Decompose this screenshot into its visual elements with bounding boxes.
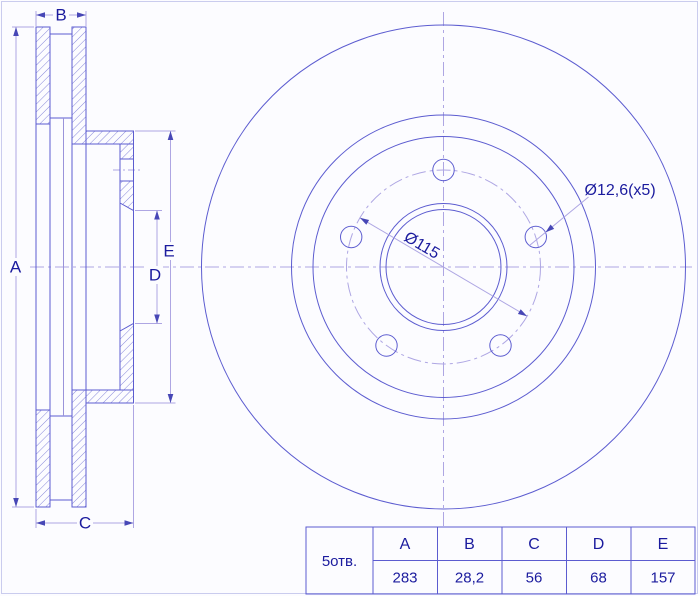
table-header-row: A B C D E (400, 536, 669, 553)
dim-a: A (7, 27, 34, 507)
table-value-c: 56 (526, 569, 543, 586)
table-value-e: 157 (650, 569, 675, 586)
hub-face-hatch-mid (120, 181, 134, 211)
drawing-canvas: A B C D (0, 0, 700, 596)
dim-label-c: C (79, 513, 91, 532)
table-header-d: D (593, 536, 605, 553)
table-header-b: B (464, 536, 475, 553)
table-header-e: E (658, 536, 669, 553)
hub-face-hatch-top (120, 144, 134, 159)
dim-label-a: A (10, 257, 22, 276)
centerlines (30, 12, 692, 530)
table-header-a: A (400, 536, 411, 553)
bolt-hole-bottom-right (490, 335, 511, 356)
table-row-label: 5отв. (322, 553, 357, 570)
table-header-c: C (528, 536, 540, 553)
bolt-circle-label: Ø115 (401, 229, 442, 263)
outboard-plate-lower-hatch (36, 410, 50, 507)
dim-b: B (36, 5, 86, 26)
technical-drawing: A B C D (0, 0, 700, 596)
table-value-b: 28,2 (455, 569, 484, 586)
table-value-a: 283 (392, 569, 417, 586)
page-frame (2, 2, 698, 594)
inboard-plate-hat-upper-hatch (72, 27, 134, 144)
bolt-holes-label: Ø12,6(x5) (585, 182, 656, 199)
hub-face-hatch-bottom (120, 324, 134, 391)
table-value-row: 283 28,2 56 68 157 (392, 569, 675, 586)
inboard-plate-hat-lower-hatch (72, 390, 134, 507)
dim-label-d: D (149, 265, 161, 284)
dim-label-e: E (163, 241, 174, 260)
spec-table: 5отв. A B C D E 283 28,2 56 68 157 (306, 527, 695, 594)
dim-label-b: B (55, 5, 66, 24)
dimensions: A B C D (7, 5, 656, 532)
outboard-plate-upper-hatch (36, 27, 50, 124)
table-value-d: 68 (590, 569, 607, 586)
